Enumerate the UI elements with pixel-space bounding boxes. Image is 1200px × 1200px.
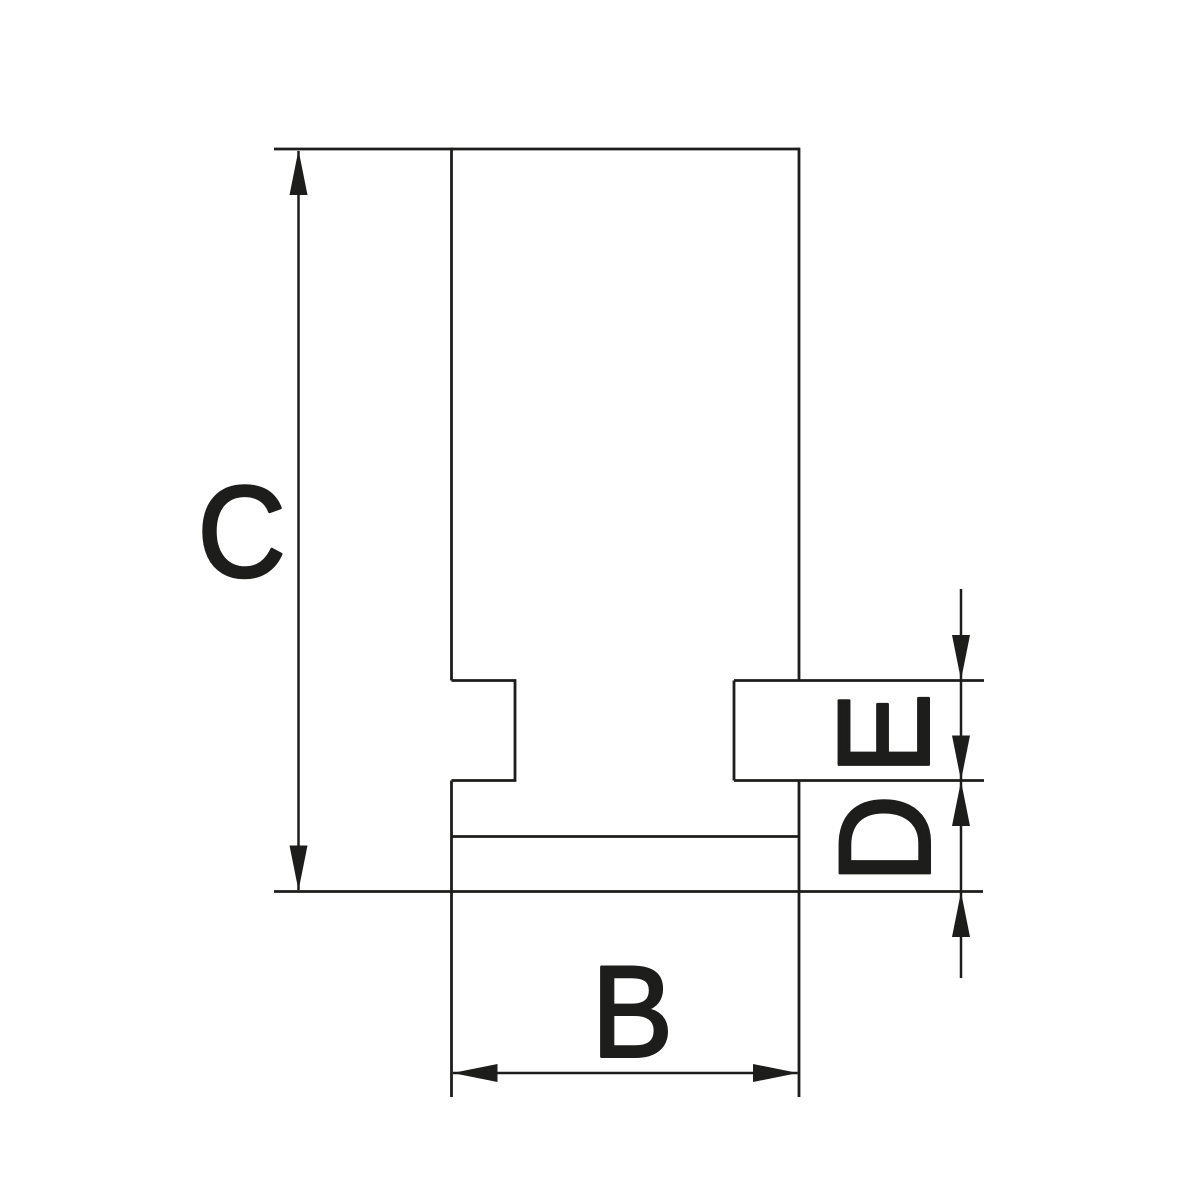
- svg-text:B: B: [592, 939, 674, 1084]
- svg-text:E: E: [811, 693, 956, 775]
- svg-text:C: C: [198, 459, 286, 604]
- svg-text:D: D: [812, 795, 957, 883]
